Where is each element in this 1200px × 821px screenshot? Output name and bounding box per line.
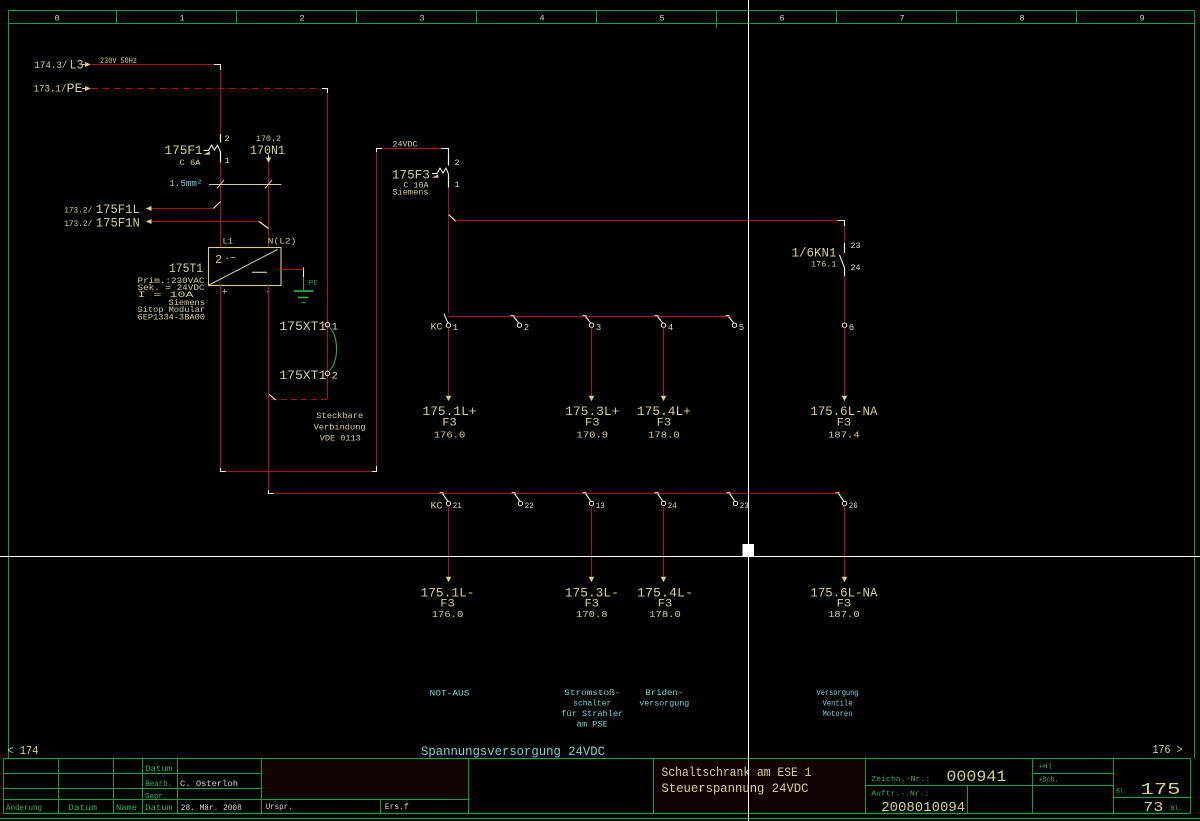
svg-text:28. Mär. 2008: 28. Mär. 2008 — [181, 804, 242, 813]
svg-text:am PSE: am PSE — [577, 719, 608, 729]
svg-text:+Sch.: +Sch. — [1038, 776, 1058, 784]
svg-text:·~: ·~ — [224, 254, 236, 265]
svg-text:für Strahler: für Strahler — [561, 709, 623, 719]
svg-text:Briden-: Briden- — [645, 688, 683, 698]
svg-text:1: 1 — [455, 180, 460, 190]
svg-text:Steuerspannung 24VDC: Steuerspannung 24VDC — [662, 782, 809, 796]
svg-text:170.2: 170.2 — [256, 134, 281, 144]
svg-text:173.2/: 173.2/ — [64, 206, 92, 216]
svg-text:5: 5 — [659, 14, 664, 24]
svg-text:21: 21 — [453, 501, 462, 511]
svg-text:< 174: < 174 — [7, 744, 38, 758]
svg-text:2: 2 — [524, 323, 529, 333]
svg-text:170.9: 170.9 — [577, 430, 609, 440]
svg-text:175XT1: 175XT1 — [279, 368, 326, 383]
svg-text:L3: L3 — [70, 59, 84, 73]
svg-text:Ventile: Ventile — [823, 698, 853, 708]
svg-text:3: 3 — [596, 323, 601, 333]
svg-text:Spannungsversorgung 24VDC: Spannungsversorgung 24VDC — [421, 745, 605, 759]
svg-text:178.0: 178.0 — [649, 610, 681, 620]
svg-text:F3: F3 — [440, 599, 455, 611]
svg-text:PE: PE — [67, 82, 83, 96]
svg-text:F3: F3 — [585, 418, 600, 430]
svg-text:Zeichn.-Nr.:: Zeichn.-Nr.: — [871, 776, 930, 784]
svg-text:173.1/: 173.1/ — [34, 84, 67, 96]
svg-text:Verbindung: Verbindung — [314, 422, 366, 432]
svg-text:Bl.: Bl. — [1116, 788, 1126, 795]
svg-text:+: + — [222, 288, 227, 298]
svg-text:9: 9 — [1139, 14, 1144, 24]
svg-text:F3: F3 — [658, 599, 673, 611]
svg-text:Ers.f: Ers.f — [385, 803, 409, 812]
svg-text:Schaltschrank am ESE 1: Schaltschrank am ESE 1 — [662, 766, 812, 780]
svg-text:F3: F3 — [837, 599, 852, 611]
svg-text:2: 2 — [332, 371, 338, 382]
svg-text:4: 4 — [668, 323, 673, 333]
svg-text:Gepr.: Gepr. — [145, 793, 167, 802]
svg-text:26: 26 — [849, 501, 858, 511]
svg-text:2008010094: 2008010094 — [881, 800, 965, 816]
svg-text:0: 0 — [54, 14, 59, 24]
svg-text:1: 1 — [453, 323, 458, 333]
svg-text:VDE 0113: VDE 0113 — [320, 433, 361, 443]
svg-text:175: 175 — [1141, 781, 1181, 800]
svg-text:F3: F3 — [837, 418, 852, 430]
svg-text:1/6KN1: 1/6KN1 — [792, 247, 837, 261]
svg-text:175F1: 175F1 — [165, 144, 203, 158]
svg-text:173.2/: 173.2/ — [64, 219, 92, 229]
svg-text:23: 23 — [740, 501, 749, 511]
svg-text:23: 23 — [851, 241, 861, 251]
svg-text:F3: F3 — [442, 418, 457, 430]
svg-text:C. Osterloh: C. Osterloh — [180, 779, 238, 789]
svg-text:174.3/: 174.3/ — [34, 60, 67, 72]
svg-text:2: 2 — [225, 134, 230, 144]
svg-text:175XT1: 175XT1 — [279, 319, 326, 334]
svg-text:Versorgung: Versorgung — [817, 688, 859, 698]
svg-text:6: 6 — [779, 14, 784, 24]
svg-text:187.4: 187.4 — [828, 430, 860, 440]
svg-text:+Hl: +Hl — [1038, 764, 1052, 772]
svg-text:175F1L: 175F1L — [96, 203, 140, 217]
svg-text:C 6A: C 6A — [180, 158, 202, 168]
svg-text:1: 1 — [225, 156, 230, 166]
svg-text:Datum: Datum — [68, 804, 97, 813]
svg-text:KC: KC — [431, 323, 443, 334]
svg-text:Datum: Datum — [145, 804, 172, 813]
svg-text:3: 3 — [419, 14, 424, 24]
svg-text:187.0: 187.0 — [828, 610, 860, 620]
svg-text:170N1: 170N1 — [250, 144, 285, 158]
svg-text:Urspr.: Urspr. — [266, 803, 293, 812]
svg-text:F3: F3 — [657, 418, 672, 430]
svg-text:6: 6 — [849, 323, 854, 333]
svg-text:6EP1334-3BA00: 6EP1334-3BA00 — [138, 314, 206, 322]
svg-text:24: 24 — [851, 263, 861, 273]
svg-text:175F1N: 175F1N — [96, 216, 140, 230]
svg-text:178.0: 178.0 — [648, 430, 680, 440]
svg-text:Name: Name — [116, 804, 137, 813]
svg-text:Datum: Datum — [145, 765, 172, 774]
svg-text:N(L2): N(L2) — [268, 237, 297, 247]
svg-text:175T1: 175T1 — [169, 262, 203, 276]
svg-text:4: 4 — [539, 14, 544, 24]
svg-text:L1: L1 — [223, 237, 234, 247]
svg-text:2: 2 — [215, 253, 222, 267]
svg-text:22: 22 — [525, 501, 534, 511]
svg-text:Änderung: Änderung — [6, 804, 42, 813]
svg-text:Steckbare: Steckbare — [316, 411, 363, 421]
svg-text:Bearb.: Bearb. — [145, 780, 172, 789]
svg-text:2: 2 — [299, 14, 304, 24]
svg-text:13: 13 — [596, 501, 605, 511]
svg-text:2: 2 — [455, 158, 460, 168]
svg-text:Siemens: Siemens — [393, 188, 429, 198]
svg-text:176 >: 176 > — [1153, 743, 1183, 757]
svg-text:73: 73 — [1143, 800, 1163, 816]
svg-text:1: 1 — [179, 14, 184, 24]
svg-text:170.8: 170.8 — [576, 610, 608, 620]
svg-text:24: 24 — [668, 501, 677, 511]
svg-text:176.0: 176.0 — [434, 430, 466, 440]
svg-text:Bl.: Bl. — [1170, 805, 1183, 812]
svg-text:7: 7 — [899, 14, 904, 24]
svg-text:Stromstoß-: Stromstoß- — [564, 688, 620, 698]
svg-text:Motoren: Motoren — [823, 709, 853, 719]
svg-text:1.5mm²: 1.5mm² — [169, 179, 202, 189]
svg-text:F3: F3 — [585, 599, 600, 611]
svg-text:Auftr.-.Nr.:: Auftr.-.Nr.: — [871, 791, 929, 799]
svg-text:NOT-AUS: NOT-AUS — [430, 688, 470, 698]
svg-text:176.0: 176.0 — [432, 610, 464, 620]
svg-text:176.1: 176.1 — [811, 260, 837, 270]
svg-text:KC: KC — [431, 501, 443, 512]
svg-text:PE: PE — [309, 280, 318, 288]
svg-text:5: 5 — [739, 323, 744, 333]
svg-text:schalter: schalter — [573, 698, 611, 708]
svg-text:versorgung: versorgung — [639, 698, 689, 708]
svg-text:8: 8 — [1019, 14, 1024, 24]
svg-text:000941: 000941 — [946, 768, 1006, 786]
